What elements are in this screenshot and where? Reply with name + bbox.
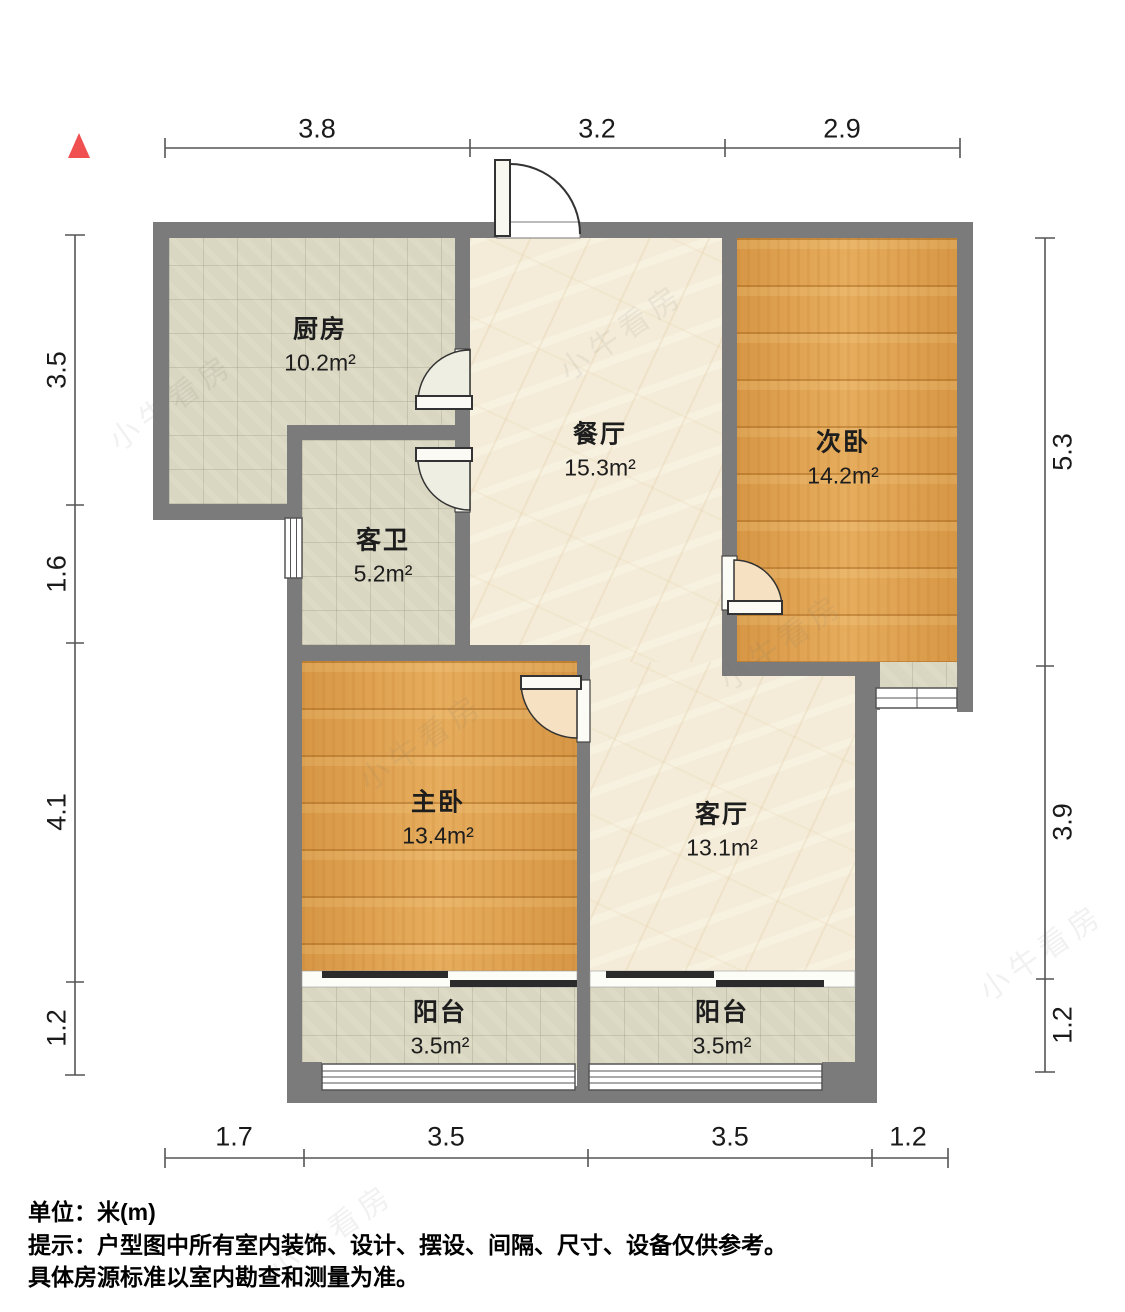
room-name: 阳台 [693,993,752,1029]
dim-bottom-4: 1.2 [889,1122,927,1153]
floorplan-canvas: 小牛看房 小牛看房 小牛看房 小牛看房 小牛看房 小牛看房 厨房 10.2m² … [0,0,1125,1312]
room-name: 客厅 [686,795,758,831]
dim-bottom-1: 1.7 [215,1122,253,1153]
room-label-bedroom2: 次卧 14.2m² [807,423,879,490]
room-label-kitchen: 厨房 10.2m² [284,310,356,377]
dim-right-1: 5.3 [1048,433,1079,471]
room-label-balcony1: 阳台 3.5m² [411,993,470,1060]
footer-disclaimer: 单位：米(m) 提示：户型图中所有室内装饰、设计、摆设、间隔、尺寸、设备仅供参考… [28,1196,787,1294]
room-name: 客卫 [354,521,413,557]
watermark: 小牛看房 [968,891,1111,1010]
room-label-master: 主卧 13.4m² [402,783,474,850]
dim-left-3: 4.1 [42,793,73,831]
room-area: 10.2m² [284,350,356,377]
room-area: 13.1m² [686,835,758,862]
room-area: 14.2m² [807,463,879,490]
room-label-bath: 客卫 5.2m² [354,521,413,588]
room-area: 3.5m² [411,1033,470,1060]
dim-top-3: 2.9 [823,114,861,145]
bath-window [285,518,302,578]
dim-top-1: 3.8 [298,114,336,145]
dim-left-2: 1.6 [42,555,73,593]
footer-unit-line: 单位：米(m) [28,1196,787,1229]
dim-top-2: 3.2 [578,114,616,145]
dim-bottom-2: 3.5 [427,1122,465,1153]
dim-left-4: 1.2 [42,1009,73,1047]
room-area: 3.5m² [693,1033,752,1060]
room-name: 阳台 [411,993,470,1029]
dim-left-1: 3.5 [42,351,73,389]
room-area: 15.3m² [564,455,636,482]
room-label-dining: 餐厅 15.3m² [564,415,636,482]
bay-window-floor [878,662,957,692]
room-area: 5.2m² [354,561,413,588]
footer-tip-line2: 具体房源标准以室内勘查和测量为准。 [28,1261,787,1294]
entry-door [495,160,580,236]
room-name: 主卧 [402,783,474,819]
room-name: 餐厅 [564,415,636,451]
dim-bottom-3: 3.5 [711,1122,749,1153]
footer-tip-line1: 提示：户型图中所有室内装饰、设计、摆设、间隔、尺寸、设备仅供参考。 [28,1229,787,1262]
room-label-living: 客厅 13.1m² [686,795,758,862]
room-area: 13.4m² [402,823,474,850]
room-name: 厨房 [284,310,356,346]
dim-right-2: 3.9 [1048,803,1079,841]
room-name: 次卧 [807,423,879,459]
room-label-balcony2: 阳台 3.5m² [693,993,752,1060]
north-arrow-icon [68,133,90,158]
dim-right-3: 1.2 [1048,1006,1079,1044]
